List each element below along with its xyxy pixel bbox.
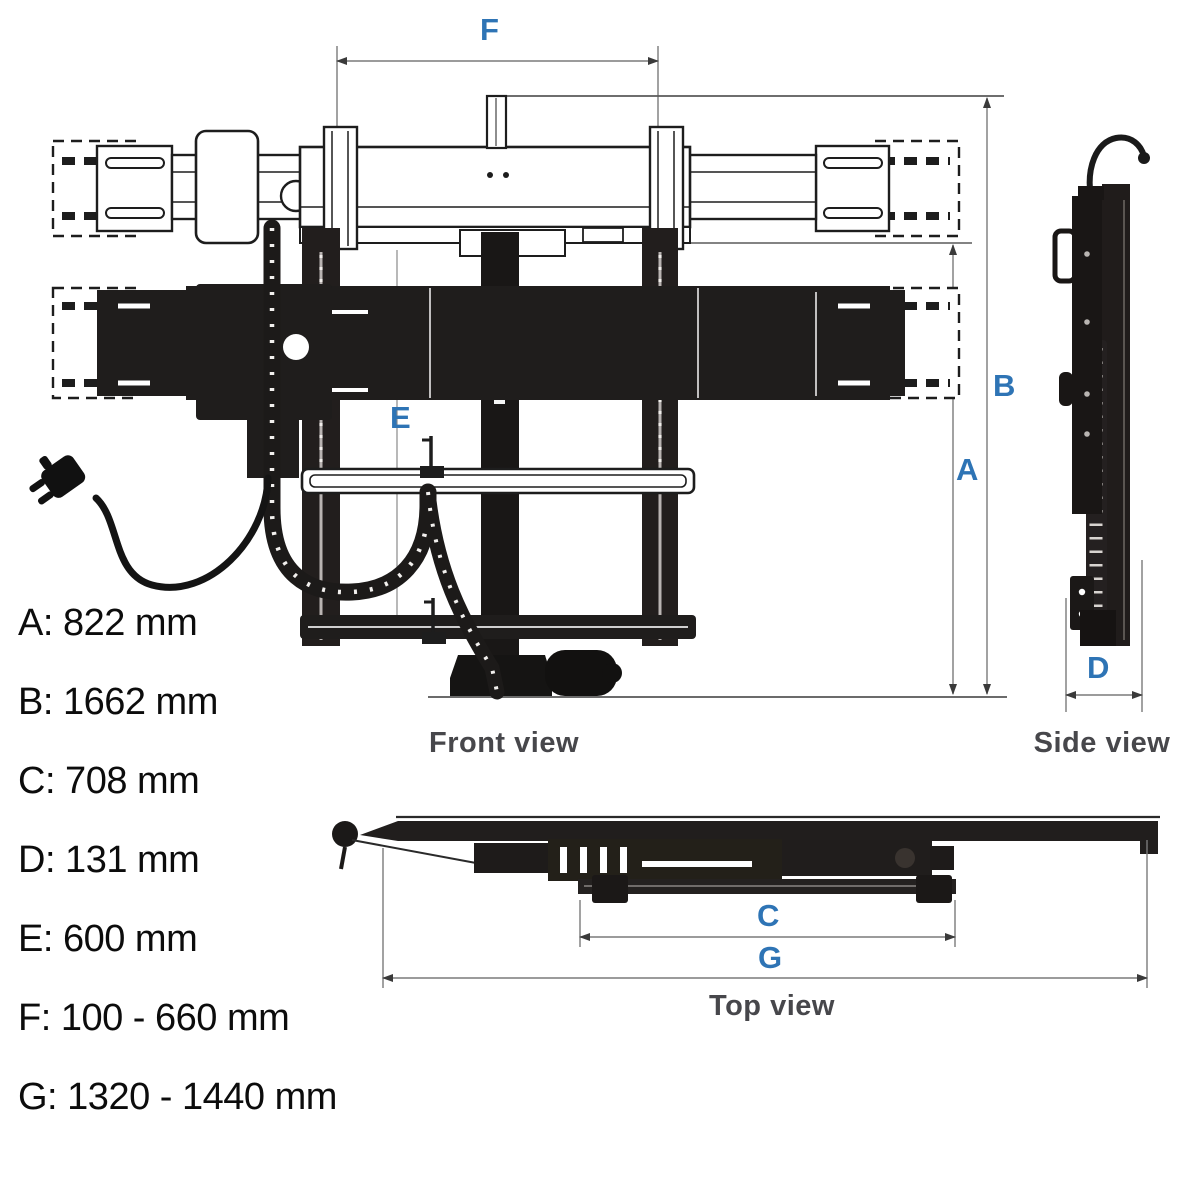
side-view-caption: Side view — [952, 727, 1200, 760]
top-view — [332, 817, 1160, 988]
dim-label-c: C — [757, 898, 779, 934]
dim-label-d: D — [1087, 650, 1109, 686]
legend-item-c: C: 708 mm — [18, 760, 199, 803]
legend-item-e: E: 600 mm — [18, 918, 197, 961]
dim-label-b: B — [993, 368, 1015, 404]
legend-item-a: A: 822 mm — [18, 602, 197, 645]
legend-item-g: G: 1320 - 1440 mm — [18, 1076, 337, 1119]
dim-label-a: A — [956, 452, 978, 488]
side-view — [1055, 137, 1150, 712]
legend-item-b: B: 1662 mm — [18, 681, 218, 724]
dim-label-g: G — [758, 940, 782, 976]
dim-label-e: E — [390, 400, 411, 436]
power-cord-and-plug — [18, 443, 268, 588]
top-view-caption: Top view — [622, 990, 922, 1023]
tv-lift-dimension-drawing: F B A E D C G Front view Side view Top v… — [0, 0, 1200, 1200]
front-view-caption: Front view — [354, 727, 654, 760]
legend-item-f: F: 100 - 660 mm — [18, 997, 289, 1040]
legend-item-d: D: 131 mm — [18, 839, 199, 882]
dim-label-f: F — [480, 12, 499, 48]
